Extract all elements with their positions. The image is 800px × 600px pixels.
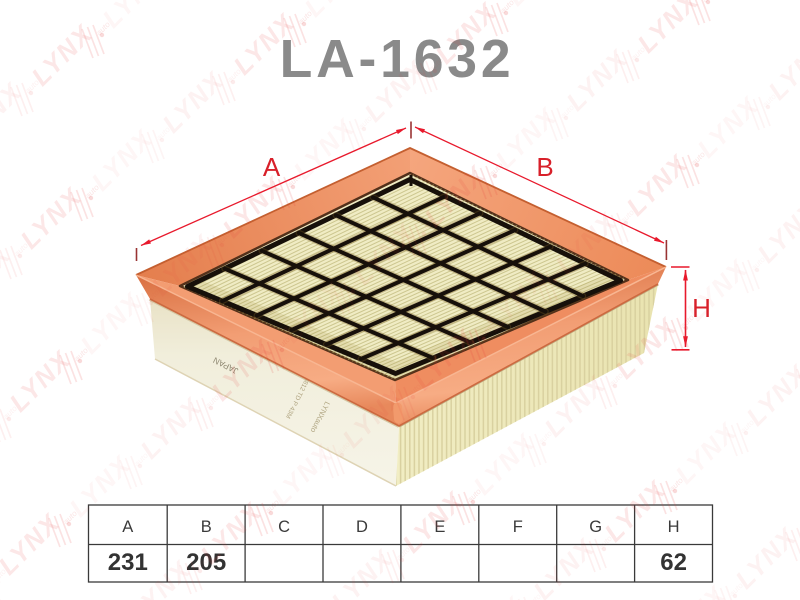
svg-text:A: A [122,518,133,536]
svg-text:62: 62 [660,549,687,576]
svg-text:231: 231 [108,549,148,576]
svg-text:C: C [278,518,290,536]
svg-text:F: F [513,518,523,536]
svg-text:B: B [536,152,553,182]
svg-text:D: D [356,518,368,536]
svg-text:H: H [668,518,680,536]
